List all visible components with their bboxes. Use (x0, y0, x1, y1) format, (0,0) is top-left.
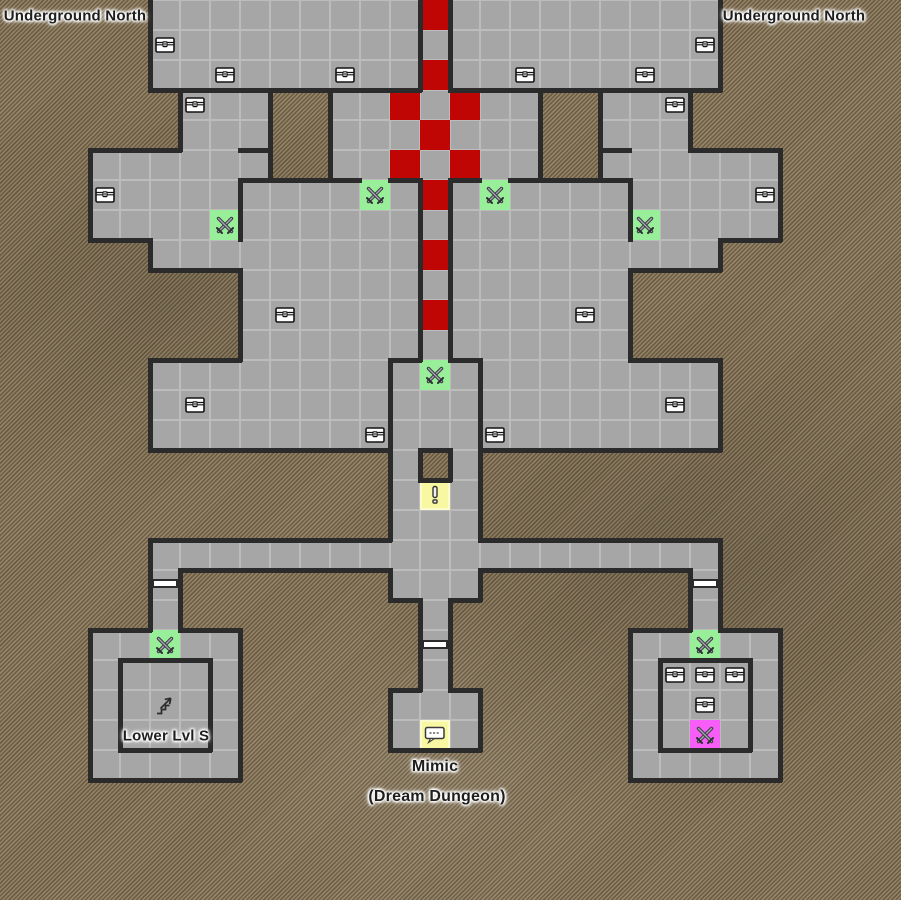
wall-segment (688, 778, 722, 783)
floor-tile (600, 120, 630, 150)
chest-icon (95, 187, 115, 203)
floor-tile (390, 300, 420, 330)
door-marker (150, 579, 180, 588)
floor-tile (420, 510, 450, 540)
wall-segment (418, 58, 423, 92)
floor-tile (210, 150, 240, 180)
floor-tile (330, 390, 360, 420)
wall-segment (448, 358, 482, 363)
floor-tile (450, 270, 480, 300)
wall-segment (118, 658, 123, 692)
wall-segment (508, 178, 542, 183)
wall-segment (778, 718, 783, 752)
floor-tile (510, 150, 540, 180)
wall-segment (628, 658, 633, 692)
floor-tile (360, 0, 390, 30)
floor-tile (180, 660, 210, 690)
floor-tile (390, 240, 420, 270)
wall-segment (568, 178, 602, 183)
floor-tile (270, 210, 300, 240)
wall-segment (688, 88, 722, 93)
wall-segment (658, 658, 663, 692)
chest-tile (210, 60, 240, 90)
wall-segment (718, 148, 752, 153)
wall-segment (508, 568, 542, 573)
floor-tile (660, 240, 690, 270)
wall-segment (148, 448, 182, 453)
chest-icon (155, 37, 175, 53)
floor-tile (540, 300, 570, 330)
chest-icon (185, 97, 205, 113)
floor-tile (210, 30, 240, 60)
wall-segment (238, 718, 243, 752)
floor-tile (480, 150, 510, 180)
wall-segment (658, 748, 692, 753)
chest-icon (665, 397, 685, 413)
floor-tile (630, 390, 660, 420)
wall-segment (508, 88, 542, 93)
wall-segment (88, 718, 93, 752)
floor-tile (450, 690, 480, 720)
wall-segment (628, 208, 633, 242)
floor-tile (240, 180, 270, 210)
wall-segment (178, 88, 212, 93)
wall-segment (148, 268, 182, 273)
floor-tile (480, 300, 510, 330)
wall-segment (688, 448, 722, 453)
floor-tile (720, 150, 750, 180)
wall-segment (478, 388, 483, 422)
red-path-tile (390, 90, 420, 120)
wall-segment (238, 628, 243, 662)
wall-segment (448, 598, 453, 632)
wall-segment (508, 448, 542, 453)
floor-tile (330, 300, 360, 330)
floor-tile (450, 480, 480, 510)
floor-tile (300, 240, 330, 270)
floor-tile (600, 150, 630, 180)
floor-tile (120, 690, 150, 720)
floor-tile (390, 30, 420, 60)
crossed-swords-icon (692, 722, 718, 748)
wall-segment (658, 568, 692, 573)
wall-segment (448, 208, 453, 242)
floor-tile (450, 570, 480, 600)
wall-segment (628, 328, 633, 362)
wall-segment (688, 658, 722, 663)
floor-tile (600, 210, 630, 240)
floor-tile (480, 330, 510, 360)
floor-tile (210, 240, 240, 270)
floor-tile (480, 240, 510, 270)
wall-segment (448, 268, 453, 302)
wall-segment (598, 448, 632, 453)
floor-tile (720, 630, 750, 660)
wall-segment (208, 88, 242, 93)
wall-segment (658, 688, 663, 722)
chest-tile (150, 30, 180, 60)
floor-tile (180, 150, 210, 180)
wall-segment (388, 88, 422, 93)
floor-tile (450, 360, 480, 390)
wall-segment (658, 718, 663, 752)
floor-tile (630, 120, 660, 150)
battle-tile (480, 180, 510, 210)
floor-tile (150, 540, 180, 570)
floor-tile (240, 240, 270, 270)
chest-icon (665, 97, 685, 113)
floor-tile (660, 630, 690, 660)
wall-segment (388, 508, 393, 542)
floor-tile (210, 540, 240, 570)
wall-segment (148, 778, 182, 783)
wall-segment (388, 178, 422, 183)
floor-tile (750, 150, 780, 180)
wall-segment (388, 598, 422, 603)
wall-segment (658, 658, 692, 663)
crossed-swords-icon (692, 632, 718, 658)
wall-segment (148, 538, 182, 543)
chest-icon (695, 697, 715, 713)
red-path-tile (420, 240, 450, 270)
wall-segment (268, 148, 273, 182)
wall-segment (598, 88, 603, 122)
floor-tile (660, 720, 690, 750)
floor-tile (480, 0, 510, 30)
wall-segment (628, 88, 662, 93)
wall-segment (478, 508, 483, 542)
floor-tile (90, 210, 120, 240)
wall-segment (448, 178, 453, 212)
floor-tile (300, 330, 330, 360)
wall-segment (748, 718, 753, 752)
floor-tile (690, 360, 720, 390)
wall-segment (358, 448, 392, 453)
floor-tile (300, 60, 330, 90)
floor-tile (150, 150, 180, 180)
floor-tile (330, 420, 360, 450)
door-marker (690, 579, 720, 588)
chest-icon (725, 667, 745, 683)
floor-tile (330, 210, 360, 240)
floor-tile (240, 210, 270, 240)
floor-tile (480, 390, 510, 420)
chest-tile (720, 660, 750, 690)
floor-tile (330, 240, 360, 270)
chest-tile (690, 660, 720, 690)
wall-segment (418, 238, 423, 272)
floor-tile (720, 210, 750, 240)
floor-tile (180, 630, 210, 660)
floor-tile (420, 330, 450, 360)
wall-segment (238, 298, 243, 332)
floor-tile (360, 210, 390, 240)
floor-tile (270, 60, 300, 90)
floor-tile (510, 330, 540, 360)
wall-segment (88, 628, 93, 662)
wall-segment (598, 178, 632, 183)
red-path-tile (420, 180, 450, 210)
floor-tile (480, 120, 510, 150)
wall-segment (538, 178, 572, 183)
wall-segment (478, 418, 483, 452)
floor-tile (540, 330, 570, 360)
floor-tile (690, 240, 720, 270)
wall-segment (628, 268, 662, 273)
wall-segment (208, 268, 242, 273)
floor-tile (390, 270, 420, 300)
floor-tile (630, 420, 660, 450)
wall-segment (778, 148, 783, 182)
floor-tile (360, 360, 390, 390)
wall-segment (328, 88, 362, 93)
floor-tile (360, 540, 390, 570)
floor-tile (240, 540, 270, 570)
floor-tile (480, 210, 510, 240)
floor-tile (210, 90, 240, 120)
floor-tile (600, 360, 630, 390)
wall-segment (748, 778, 782, 783)
wall-segment (478, 358, 483, 392)
wall-segment (538, 568, 572, 573)
floor-tile (630, 0, 660, 30)
wall-segment (658, 628, 692, 633)
floor-tile (360, 240, 390, 270)
floor-tile (570, 360, 600, 390)
wall-segment (298, 448, 332, 453)
chest-tile (510, 60, 540, 90)
wall-segment (538, 448, 572, 453)
wall-segment (748, 658, 753, 692)
wall-segment (418, 598, 423, 632)
wall-segment (418, 268, 423, 302)
chest-icon (575, 307, 595, 323)
chest-icon (695, 37, 715, 53)
floor-tile (630, 90, 660, 120)
wall-segment (598, 88, 632, 93)
floor-tile (570, 0, 600, 30)
wall-segment (478, 478, 483, 512)
floor-tile (570, 30, 600, 60)
floor-tile (330, 0, 360, 30)
floor-tile (690, 420, 720, 450)
wall-segment (538, 148, 543, 182)
wall-segment (388, 418, 393, 452)
wall-segment (118, 238, 152, 243)
wall-segment (238, 208, 243, 242)
floor-tile (210, 180, 240, 210)
wall-segment (268, 568, 302, 573)
floor-tile (450, 60, 480, 90)
wall-segment (388, 568, 393, 602)
floor-tile (420, 150, 450, 180)
floor-tile (300, 300, 330, 330)
wall-segment (718, 238, 723, 272)
floor-tile (600, 540, 630, 570)
crossed-swords-icon (482, 182, 508, 208)
floor-tile (450, 330, 480, 360)
wall-segment (568, 538, 602, 543)
wall-segment (598, 148, 603, 182)
floor-tile (480, 540, 510, 570)
wall-segment (538, 118, 543, 152)
floor-tile (120, 180, 150, 210)
floor-tile (180, 420, 210, 450)
wall-segment (268, 538, 302, 543)
chest-icon (695, 667, 715, 683)
wall-segment (178, 778, 212, 783)
floor-tile (390, 180, 420, 210)
wall-segment (148, 28, 153, 62)
floor-tile (450, 180, 480, 210)
floor-tile (300, 540, 330, 570)
crossed-swords-icon (152, 632, 178, 658)
wall-segment (478, 688, 483, 722)
wall-segment (298, 88, 332, 93)
floor-tile (330, 30, 360, 60)
floor-tile (330, 120, 360, 150)
floor-tile (480, 30, 510, 60)
floor-tile (450, 720, 480, 750)
wall-segment (688, 268, 722, 273)
floor-tile (450, 450, 480, 480)
wall-segment (448, 28, 453, 62)
wall-segment (538, 538, 572, 543)
chest-tile (480, 420, 510, 450)
floor-tile (570, 210, 600, 240)
wall-segment (388, 478, 393, 512)
wall-segment (478, 538, 512, 543)
wall-segment (628, 448, 662, 453)
wall-segment (178, 538, 212, 543)
wall-segment (388, 688, 393, 722)
wall-segment (238, 748, 243, 782)
floor-tile (270, 420, 300, 450)
mimic-tile (420, 720, 450, 750)
wall-segment (598, 118, 603, 152)
wall-segment (628, 778, 662, 783)
wall-segment (88, 658, 93, 692)
wall-segment (88, 178, 93, 212)
wall-segment (688, 88, 693, 122)
wall-segment (88, 748, 93, 782)
wall-segment (688, 358, 722, 363)
floor-tile (150, 750, 180, 780)
wall-segment (418, 28, 423, 62)
floor-tile (150, 420, 180, 450)
wall-segment (88, 148, 93, 182)
battle-tile (690, 630, 720, 660)
chest-tile (690, 30, 720, 60)
floor-tile (120, 150, 150, 180)
wall-segment (238, 328, 243, 362)
floor-tile (210, 750, 240, 780)
floor-tile (210, 690, 240, 720)
floor-tile (660, 30, 690, 60)
floor-tile (750, 210, 780, 240)
wall-segment (118, 778, 152, 783)
wall-segment (658, 358, 692, 363)
wall-segment (88, 238, 122, 243)
floor-tile (660, 360, 690, 390)
wall-segment (778, 688, 783, 722)
floor-tile (690, 750, 720, 780)
wall-segment (778, 748, 783, 782)
floor-tile (90, 720, 120, 750)
red-path-tile (420, 300, 450, 330)
map-label: Underground North (4, 8, 147, 25)
chest-icon (755, 187, 775, 203)
floor-tile (180, 0, 210, 30)
wall-segment (418, 298, 423, 332)
chest-tile (180, 390, 210, 420)
floor-tile (510, 300, 540, 330)
floor-tile (150, 60, 180, 90)
wall-segment (298, 178, 332, 183)
chest-tile (270, 300, 300, 330)
floor-tile (240, 60, 270, 90)
floor-tile (150, 600, 180, 630)
wall-segment (118, 148, 152, 153)
floor-tile (180, 180, 210, 210)
floor-tile (300, 420, 330, 450)
chest-tile (360, 420, 390, 450)
wall-segment (238, 88, 272, 93)
chest-icon (215, 67, 235, 83)
wall-segment (658, 448, 692, 453)
wall-segment (478, 88, 512, 93)
floor-tile (360, 300, 390, 330)
floor-tile (750, 750, 780, 780)
floor-tile (420, 30, 450, 60)
floor-tile (300, 180, 330, 210)
wall-segment (178, 268, 212, 273)
wall-segment (208, 568, 242, 573)
floor-tile (360, 30, 390, 60)
floor-tile (240, 120, 270, 150)
wall-segment (718, 598, 723, 632)
wall-segment (148, 418, 153, 452)
floor-tile (480, 270, 510, 300)
wall-segment (418, 448, 452, 453)
floor-tile (750, 660, 780, 690)
chest-tile (90, 180, 120, 210)
floor-tile (570, 330, 600, 360)
floor-tile (540, 360, 570, 390)
floor-tile (540, 0, 570, 30)
wall-segment (298, 538, 332, 543)
chest-tile (570, 300, 600, 330)
floor-tile (210, 120, 240, 150)
floor-tile (480, 360, 510, 390)
floor-tile (540, 240, 570, 270)
floor-tile (450, 240, 480, 270)
wall-segment (718, 778, 752, 783)
wall-segment (238, 148, 272, 153)
floor-tile (630, 720, 660, 750)
wall-segment (688, 538, 722, 543)
floor-tile (660, 750, 690, 780)
floor-tile (540, 390, 570, 420)
chest-icon (185, 397, 205, 413)
floor-tile (390, 330, 420, 360)
wall-segment (88, 778, 122, 783)
floor-tile (690, 60, 720, 90)
floor-tile (690, 390, 720, 420)
floor-tile (270, 390, 300, 420)
wall-segment (388, 358, 393, 392)
floor-tile (240, 390, 270, 420)
